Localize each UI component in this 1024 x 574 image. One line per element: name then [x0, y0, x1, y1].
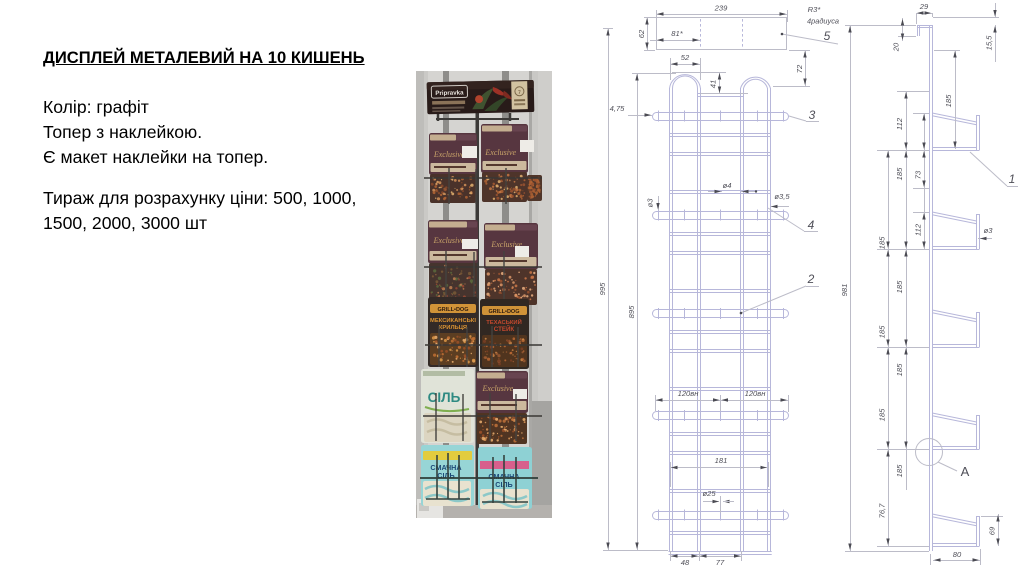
svg-text:185: 185 [944, 94, 953, 107]
svg-text:112: 112 [895, 117, 904, 130]
svg-text:ø3: ø3 [646, 198, 655, 208]
svg-text:185: 185 [878, 325, 887, 338]
svg-text:29: 29 [919, 2, 929, 11]
svg-text:ø3: ø3 [984, 226, 994, 235]
svg-text:69: 69 [988, 526, 997, 535]
svg-text:A: A [961, 464, 970, 479]
svg-text:120вн: 120вн [745, 389, 767, 398]
svg-text:181: 181 [715, 456, 728, 465]
svg-text:3: 3 [809, 108, 816, 122]
svg-text:ø3,5: ø3,5 [774, 192, 790, 201]
svg-text:80: 80 [953, 550, 962, 559]
svg-text:20: 20 [892, 42, 901, 52]
svg-text:112: 112 [914, 223, 923, 236]
svg-text:895: 895 [627, 305, 636, 318]
svg-text:185: 185 [895, 363, 904, 376]
svg-text:48: 48 [681, 558, 690, 567]
svg-text:81*: 81* [671, 29, 683, 38]
svg-text:185: 185 [895, 280, 904, 293]
svg-text:76,7: 76,7 [878, 503, 887, 519]
svg-text:185: 185 [878, 236, 887, 249]
svg-text:981: 981 [840, 284, 849, 297]
svg-text:52: 52 [681, 53, 690, 62]
svg-text:185: 185 [895, 167, 904, 180]
svg-text:1: 1 [1009, 172, 1016, 186]
svg-text:5: 5 [824, 29, 831, 43]
svg-text:ø25: ø25 [702, 489, 716, 498]
svg-text:72: 72 [795, 64, 804, 73]
svg-text:4радиуса: 4радиуса [807, 17, 839, 26]
svg-text:73: 73 [914, 170, 923, 179]
svg-text:ø4: ø4 [723, 181, 732, 190]
svg-text:4: 4 [808, 218, 815, 232]
svg-text:41: 41 [709, 80, 718, 88]
svg-text:15,5: 15,5 [985, 35, 994, 51]
svg-text:62: 62 [637, 29, 646, 38]
svg-text:2: 2 [807, 272, 815, 286]
svg-text:120вн: 120вн [678, 389, 700, 398]
svg-text:995: 995 [598, 282, 607, 295]
svg-text:185: 185 [895, 464, 904, 477]
svg-text:185: 185 [878, 408, 887, 421]
svg-text:239: 239 [714, 4, 728, 13]
svg-text:77: 77 [716, 558, 725, 567]
svg-text:4,75: 4,75 [610, 104, 626, 113]
svg-text:R3*: R3* [808, 5, 822, 14]
